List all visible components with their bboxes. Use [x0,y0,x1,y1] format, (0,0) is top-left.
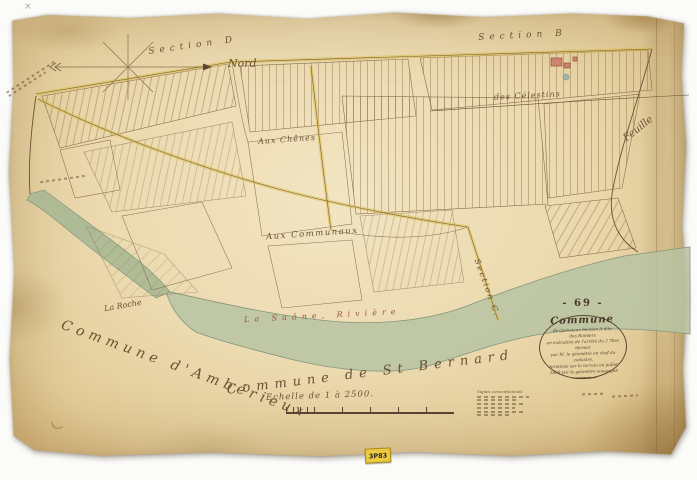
cartouche-oval: Commune de Quincieux Section A dite des … [538,313,628,380]
archive-sticker: 3P83 [365,447,392,463]
legend-line [477,411,525,413]
corner-registration-mark: × [24,2,32,12]
legend-line [477,396,529,398]
legend-title: Signes conventionnels [477,389,537,394]
legend-line [477,407,515,409]
sheet-number: - 69 - [528,298,638,309]
cartouche-line6: 1839 par le géomètre soussigné [550,368,618,376]
cartouche-title: Commune [550,314,614,327]
legend-line [477,399,517,401]
parcel-strips [42,50,652,298]
legend-line [477,403,523,405]
title-cartouche: - 69 - Commune de Quincieux Section A di… [528,298,638,379]
north-label: Nord [228,58,257,69]
legend-line [477,414,511,416]
legend-block: Signes conventionnels [477,389,537,418]
scale-bar [286,407,454,414]
